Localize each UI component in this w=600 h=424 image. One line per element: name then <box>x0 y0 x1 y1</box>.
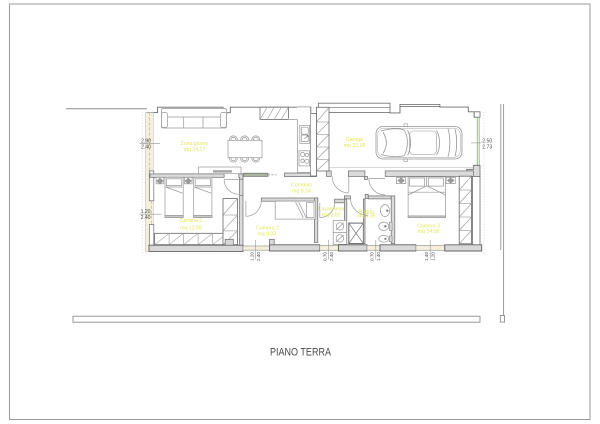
svg-text:Camera 2: Camera 2 <box>256 226 279 232</box>
svg-text:Camera 1: Camera 1 <box>180 218 203 224</box>
svg-text:1.40: 1.40 <box>376 252 381 261</box>
svg-text:0.70: 0.70 <box>322 252 327 261</box>
svg-text:2.40: 2.40 <box>256 252 261 261</box>
svg-text:1.20: 1.20 <box>249 252 254 261</box>
svg-text:1.20: 1.20 <box>431 252 436 261</box>
svg-text:2.73: 2.73 <box>482 144 492 150</box>
svg-text:mq 12.09: mq 12.09 <box>180 225 202 231</box>
svg-text:Zona giorno: Zona giorno <box>181 141 209 147</box>
svg-text:mq 23.28: mq 23.28 <box>344 143 366 149</box>
svg-text:mq 24.17: mq 24.17 <box>184 147 206 153</box>
svg-text:mq 9.54: mq 9.54 <box>292 188 311 194</box>
svg-text:mq 2.82: mq 2.82 <box>322 213 341 219</box>
svg-text:2.40: 2.40 <box>141 215 151 221</box>
svg-text:PIANO TERRA: PIANO TERRA <box>270 346 332 358</box>
svg-text:1.40: 1.40 <box>424 252 429 261</box>
svg-text:2.40: 2.40 <box>329 252 334 261</box>
svg-text:mq 9.03: mq 9.03 <box>257 232 276 238</box>
svg-text:mq 4.35: mq 4.35 <box>357 214 376 220</box>
svg-text:Lavanderia: Lavanderia <box>318 206 344 212</box>
svg-text:0.70: 0.70 <box>370 252 375 261</box>
svg-text:Garage: Garage <box>346 137 363 143</box>
svg-text:2.40: 2.40 <box>141 144 151 150</box>
svg-text:mq 14.08: mq 14.08 <box>418 229 440 235</box>
